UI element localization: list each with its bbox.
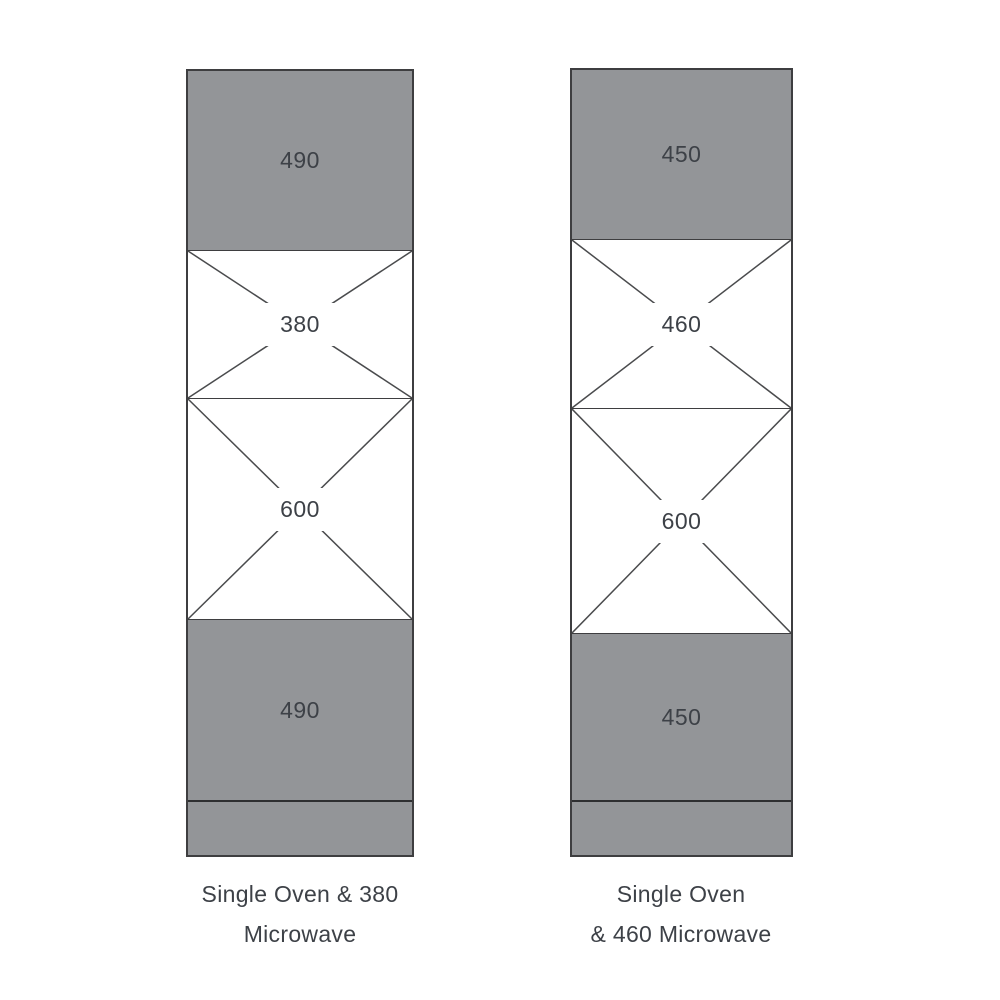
dimension-label: 380 bbox=[260, 303, 340, 346]
caption-line-2: Microwave bbox=[150, 914, 450, 954]
dimension-label: 600 bbox=[642, 500, 722, 543]
dimension-label: 450 bbox=[662, 704, 702, 731]
plinth bbox=[572, 802, 791, 855]
dimension-label: 490 bbox=[280, 697, 320, 724]
oven-opening: 600 bbox=[188, 399, 412, 620]
cabinet-caption-left: Single Oven & 380 Microwave bbox=[150, 874, 450, 954]
dimension-label: 600 bbox=[260, 488, 340, 531]
cabinet-single-oven-380-microwave: 490 380 600 490 bbox=[186, 69, 414, 857]
dimension-label: 490 bbox=[280, 147, 320, 174]
cabinet-dimension-diagram: 490 380 600 490 450 bbox=[0, 0, 1000, 1000]
caption-line-1: Single Oven & 380 bbox=[150, 874, 450, 914]
bottom-filler-panel: 450 bbox=[572, 634, 791, 802]
cabinet-caption-right: Single Oven & 460 Microwave bbox=[531, 874, 831, 954]
microwave-opening: 460 bbox=[572, 240, 791, 409]
plinth bbox=[188, 802, 412, 855]
dimension-label: 450 bbox=[662, 141, 702, 168]
cabinet-single-oven-460-microwave: 450 460 600 450 bbox=[570, 68, 793, 857]
bottom-filler-panel: 490 bbox=[188, 620, 412, 802]
microwave-opening: 380 bbox=[188, 251, 412, 399]
dimension-label: 460 bbox=[642, 303, 722, 346]
top-filler-panel: 490 bbox=[188, 71, 412, 251]
caption-line-1: Single Oven bbox=[531, 874, 831, 914]
oven-opening: 600 bbox=[572, 409, 791, 634]
top-filler-panel: 450 bbox=[572, 70, 791, 240]
caption-line-2: & 460 Microwave bbox=[531, 914, 831, 954]
